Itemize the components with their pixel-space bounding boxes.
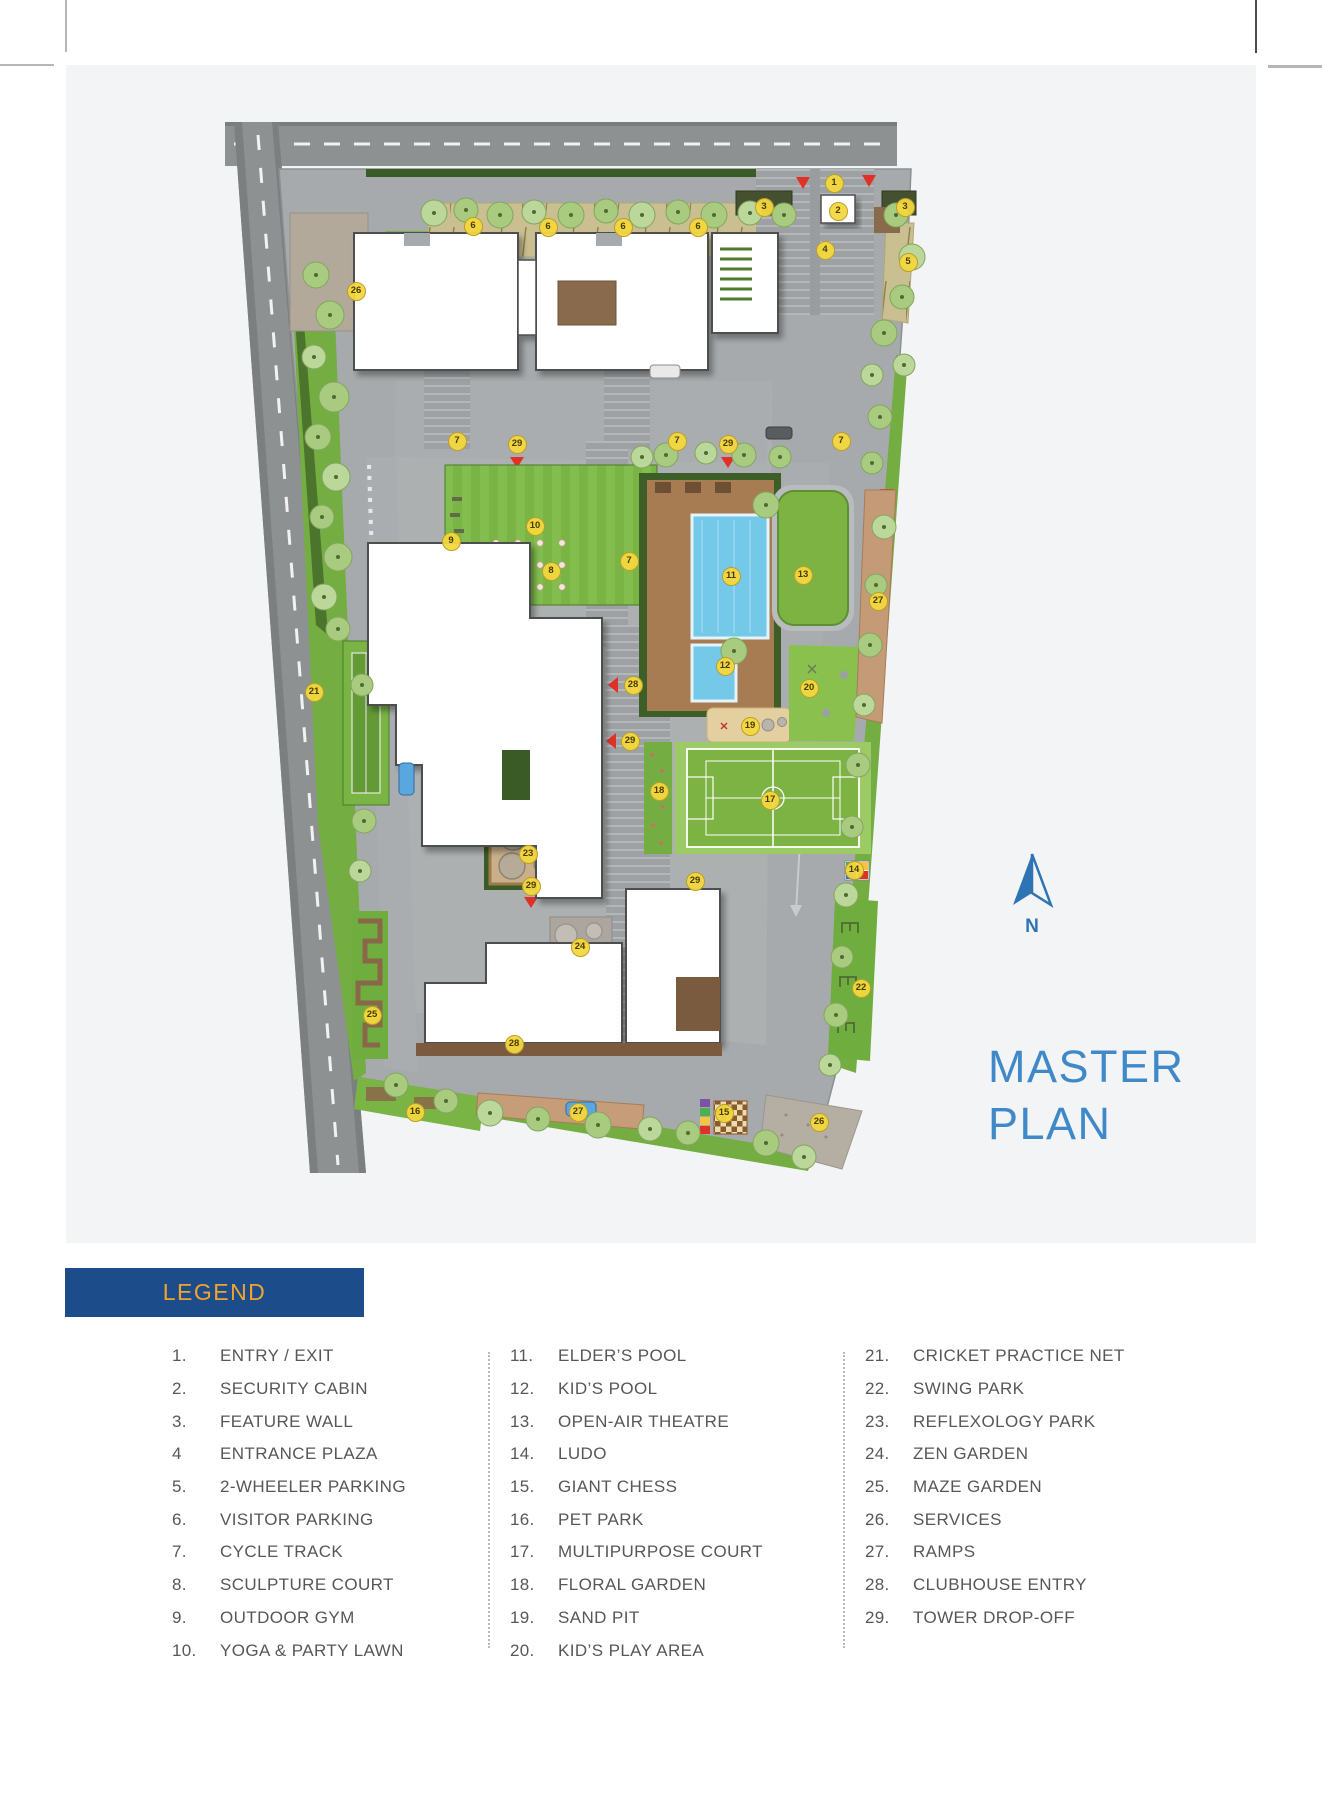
tree-icon <box>311 584 337 610</box>
legend-item-label: FLORAL GARDEN <box>558 1575 706 1595</box>
legend-item-label: MAZE GARDEN <box>913 1477 1042 1497</box>
north-arrow-icon <box>1010 853 1054 909</box>
crop-mark-top-left-v <box>65 0 67 52</box>
legend-item-label: SECURITY CABIN <box>220 1379 368 1399</box>
tree-icon <box>868 405 892 429</box>
legend-item-label: RAMPS <box>913 1542 975 1562</box>
tree-icon <box>319 382 349 412</box>
legend-item-label: CLUBHOUSE ENTRY <box>913 1575 1087 1595</box>
legend-item: 15.GIANT CHESS <box>510 1471 763 1504</box>
tree-icon <box>853 694 875 716</box>
legend-item: 8.SCULPTURE COURT <box>172 1569 406 1602</box>
legend-item-number: 6. <box>172 1510 220 1530</box>
crop-mark-top-left-h <box>0 64 54 66</box>
car-white <box>650 365 680 378</box>
legend-item: 20.KID’S PLAY AREA <box>510 1634 763 1667</box>
legend-item-number: 17. <box>510 1542 558 1562</box>
legend-item: 24.ZEN GARDEN <box>865 1438 1125 1471</box>
legend-item-label: FEATURE WALL <box>220 1412 353 1432</box>
legend-column-3: 21.CRICKET PRACTICE NET22.SWING PARK23.R… <box>865 1340 1125 1634</box>
legend-item-label: GIANT CHESS <box>558 1477 677 1497</box>
giant-chess <box>714 1101 747 1134</box>
legend-item-number: 12. <box>510 1379 558 1399</box>
legend-item-number: 25. <box>865 1477 913 1497</box>
tree-icon <box>351 674 373 696</box>
tree-icon <box>721 638 747 664</box>
tree-icon <box>384 1073 408 1097</box>
legend-item: 27.RAMPS <box>865 1536 1125 1569</box>
tree-icon <box>434 1089 458 1113</box>
legend-column-1: 1.ENTRY / EXIT2.SECURITY CABIN3.FEATURE … <box>172 1340 406 1667</box>
tree-icon <box>477 1100 503 1126</box>
page: { "title": {"line1":"MASTER","line2":"PL… <box>0 0 1322 1815</box>
legend-item-label: MULTIPURPOSE COURT <box>558 1542 763 1562</box>
tree-icon <box>753 1130 779 1156</box>
tree-icon <box>305 424 331 450</box>
legend-item-label: KID’S PLAY AREA <box>558 1641 704 1661</box>
legend-item-number: 15. <box>510 1477 558 1497</box>
legend-item-number: 24. <box>865 1444 913 1464</box>
tree-icon <box>769 446 791 468</box>
legend-item-label: SAND PIT <box>558 1608 640 1628</box>
tree-icon <box>558 202 584 228</box>
crop-mark-top-right-v <box>1255 0 1257 53</box>
tree-icon <box>349 860 371 882</box>
legend-divider-2 <box>843 1352 845 1648</box>
tree-icon <box>695 442 717 464</box>
legend-item: 12.KID’S POOL <box>510 1373 763 1406</box>
tree-icon <box>421 200 447 226</box>
legend-item: 2.SECURITY CABIN <box>172 1373 406 1406</box>
tree-icon <box>638 1117 662 1141</box>
tree-icon <box>302 345 326 369</box>
tree-icon <box>629 202 655 228</box>
legend-item: 9.OUTDOOR GYM <box>172 1602 406 1635</box>
legend-item-number: 21. <box>865 1346 913 1366</box>
legend-item-label: SWING PARK <box>913 1379 1024 1399</box>
tree-icon <box>753 492 779 518</box>
legend-item: 17.MULTIPURPOSE COURT <box>510 1536 763 1569</box>
legend-item: 28.CLUBHOUSE ENTRY <box>865 1569 1125 1602</box>
legend-item-label: ENTRANCE PLAZA <box>220 1444 378 1464</box>
tree-icon <box>772 203 796 227</box>
legend-title: LEGEND <box>163 1279 267 1306</box>
legend-divider-1 <box>488 1352 490 1648</box>
tree-icon <box>893 354 915 376</box>
elders-pool <box>692 515 768 638</box>
legend-item-label: CRICKET PRACTICE NET <box>913 1346 1125 1366</box>
legend-item-label: OPEN-AIR THEATRE <box>558 1412 729 1432</box>
legend-item-label: OUTDOOR GYM <box>220 1608 355 1628</box>
legend-item: 19.SAND PIT <box>510 1602 763 1635</box>
legend-item-number: 22. <box>865 1379 913 1399</box>
legend-item-number: 11. <box>510 1346 558 1366</box>
legend-item-number: 4 <box>172 1444 220 1464</box>
legend-item-number: 3. <box>172 1412 220 1432</box>
legend-item-label: TOWER DROP-OFF <box>913 1608 1075 1628</box>
tree-icon <box>454 198 478 222</box>
legend-item-number: 20. <box>510 1641 558 1661</box>
legend-item-label: CYCLE TRACK <box>220 1542 343 1562</box>
legend-item: 22.SWING PARK <box>865 1373 1125 1406</box>
tree-icon <box>326 617 350 641</box>
legend-item-number: 10. <box>172 1641 220 1661</box>
legend-item-number: 9. <box>172 1608 220 1628</box>
legend-column-2: 11.ELDER’S POOL12.KID’S POOL13.OPEN-AIR … <box>510 1340 763 1667</box>
tree-icon <box>487 202 513 228</box>
floral-garden <box>644 742 672 854</box>
crop-mark-top-right-h <box>1268 65 1322 68</box>
ludo <box>845 861 869 880</box>
tree-icon <box>322 463 350 491</box>
tree-icon <box>861 364 883 386</box>
tree-icon <box>865 574 887 596</box>
north-tower-west <box>354 233 518 370</box>
tree-icon <box>841 816 863 838</box>
legend-item: 4ENTRANCE PLAZA <box>172 1438 406 1471</box>
legend-item: 10.YOGA & PARTY LAWN <box>172 1634 406 1667</box>
legend-item: 18.FLORAL GARDEN <box>510 1569 763 1602</box>
legend-item-number: 28. <box>865 1575 913 1595</box>
tree-icon <box>824 1003 848 1027</box>
tree-icon <box>890 285 914 309</box>
legend-item-number: 19. <box>510 1608 558 1628</box>
legend-item: 21.CRICKET PRACTICE NET <box>865 1340 1125 1373</box>
tree-icon <box>858 633 882 657</box>
tree-icon <box>522 200 546 224</box>
north-label: N <box>1008 916 1056 938</box>
legend-item-number: 23. <box>865 1412 913 1432</box>
legend-item-number: 5. <box>172 1477 220 1497</box>
tree-icon <box>526 1107 550 1131</box>
legend-item: 26.SERVICES <box>865 1503 1125 1536</box>
kids-play-area <box>789 645 862 741</box>
page-title-line2: PLAN <box>988 1095 1185 1152</box>
legend-item-number: 7. <box>172 1542 220 1562</box>
legend-item: 23.REFLEXOLOGY PARK <box>865 1405 1125 1438</box>
legend-header: LEGEND <box>65 1268 364 1317</box>
car-blue-west <box>399 763 414 795</box>
tree-icon <box>701 202 727 228</box>
tree-icon <box>792 1145 816 1169</box>
legend-item: 14.LUDO <box>510 1438 763 1471</box>
legend-item: 3.FEATURE WALL <box>172 1405 406 1438</box>
legend-item-label: VISITOR PARKING <box>220 1510 374 1530</box>
tree-icon <box>732 443 756 467</box>
legend-item-label: PET PARK <box>558 1510 644 1530</box>
legend-item-label: REFLEXOLOGY PARK <box>913 1412 1095 1432</box>
legend-item: 29.TOWER DROP-OFF <box>865 1602 1125 1635</box>
tree-icon <box>872 515 896 539</box>
legend-item: 13.OPEN-AIR THEATRE <box>510 1405 763 1438</box>
tree-icon <box>631 446 653 468</box>
legend-item-number: 27. <box>865 1542 913 1562</box>
legend-item-number: 14. <box>510 1444 558 1464</box>
tree-icon <box>310 505 334 529</box>
tree-icon <box>846 753 870 777</box>
legend-item-number: 13. <box>510 1412 558 1432</box>
legend-item-label: ENTRY / EXIT <box>220 1346 334 1366</box>
tree-icon <box>831 946 853 968</box>
legend-item-label: SCULPTURE COURT <box>220 1575 394 1595</box>
legend-item-number: 26. <box>865 1510 913 1530</box>
tree-icon <box>316 301 344 329</box>
legend-item-label: KID’S POOL <box>558 1379 657 1399</box>
tree-icon <box>654 443 678 467</box>
security-cabin <box>821 195 855 223</box>
tree-icon <box>676 1121 700 1145</box>
legend-item-number: 1. <box>172 1346 220 1366</box>
tree-icon <box>666 200 690 224</box>
legend-item-number: 16. <box>510 1510 558 1530</box>
legend-item: 11.ELDER’S POOL <box>510 1340 763 1373</box>
tree-icon <box>899 244 925 270</box>
legend-item: 6.VISITOR PARKING <box>172 1503 406 1536</box>
legend-item-label: YOGA & PARTY LAWN <box>220 1641 404 1661</box>
legend-item: 7.CYCLE TRACK <box>172 1536 406 1569</box>
legend-item-label: ZEN GARDEN <box>913 1444 1028 1464</box>
tree-icon <box>871 320 897 346</box>
car-dark <box>766 427 792 439</box>
legend-item: 25.MAZE GARDEN <box>865 1471 1125 1504</box>
legend-item-number: 18. <box>510 1575 558 1595</box>
tree-icon <box>585 1112 611 1138</box>
legend-item-number: 8. <box>172 1575 220 1595</box>
tree-icon <box>352 809 376 833</box>
tree-icon <box>324 543 352 571</box>
legend-item-label: LUDO <box>558 1444 607 1464</box>
tree-icon <box>834 883 858 907</box>
north-compass: N <box>1008 853 1056 938</box>
tree-icon <box>884 203 908 227</box>
legend-item-label: ELDER’S POOL <box>558 1346 687 1366</box>
legend-item-label: 2-WHEELER PARKING <box>220 1477 406 1497</box>
legend-item-label: SERVICES <box>913 1510 1002 1530</box>
legend-item-number: 2. <box>172 1379 220 1399</box>
tree-icon <box>594 199 618 223</box>
legend-item-number: 29. <box>865 1608 913 1628</box>
page-title-line1: MASTER <box>988 1038 1185 1095</box>
legend-item: 1.ENTRY / EXIT <box>172 1340 406 1373</box>
tree-icon <box>738 201 762 225</box>
tree-icon <box>861 452 883 474</box>
tree-icon <box>819 1054 841 1076</box>
legend-item: 16.PET PARK <box>510 1503 763 1536</box>
tree-icon <box>303 262 329 288</box>
page-title: MASTER PLAN <box>988 1038 1185 1152</box>
legend-item: 5.2-WHEELER PARKING <box>172 1471 406 1504</box>
